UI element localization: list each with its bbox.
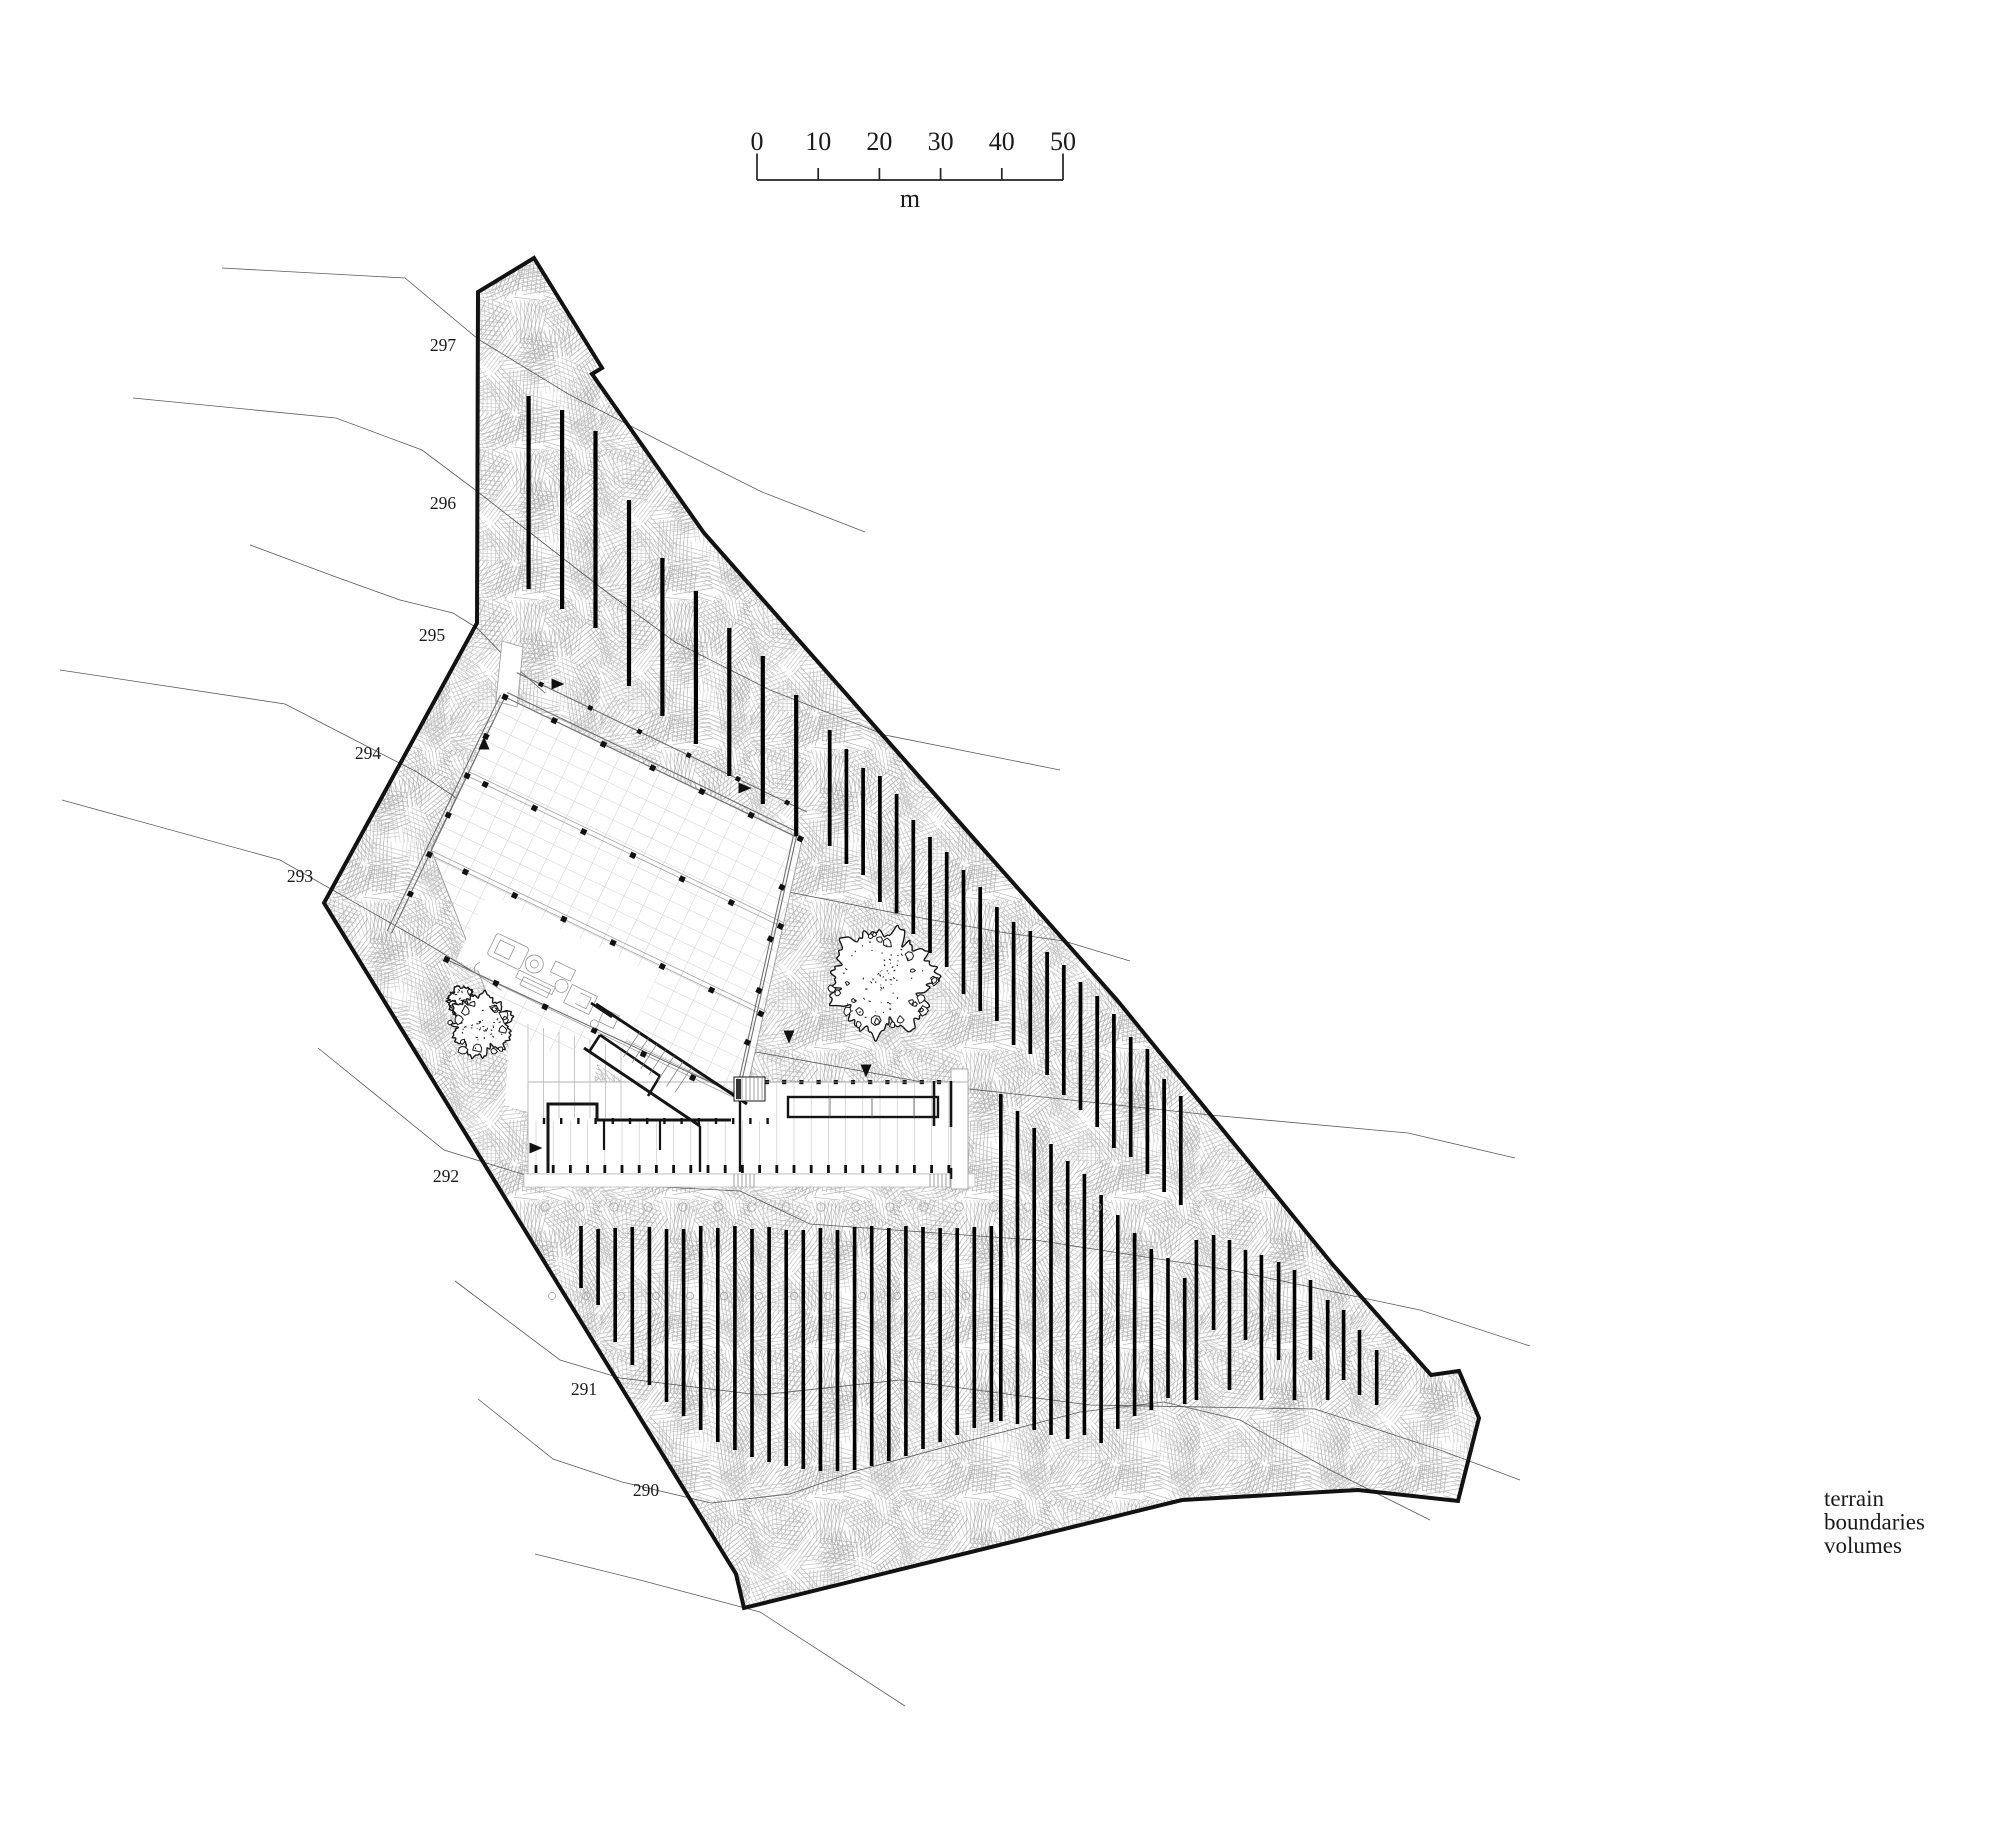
svg-text:291: 291 <box>571 1379 597 1399</box>
svg-text:296: 296 <box>430 493 457 513</box>
svg-text:20: 20 <box>866 127 892 156</box>
svg-text:290: 290 <box>633 1480 660 1500</box>
svg-text:30: 30 <box>928 127 954 156</box>
svg-text:50: 50 <box>1050 127 1076 156</box>
svg-text:volumes: volumes <box>1824 1533 1902 1558</box>
svg-text:292: 292 <box>433 1166 459 1186</box>
svg-text:terrain: terrain <box>1824 1486 1885 1511</box>
svg-text:0: 0 <box>751 127 764 156</box>
svg-text:boundaries: boundaries <box>1824 1510 1925 1535</box>
svg-text:40: 40 <box>989 127 1015 156</box>
svg-text:10: 10 <box>805 127 831 156</box>
svg-text:297: 297 <box>430 335 457 355</box>
svg-text:295: 295 <box>419 625 446 645</box>
svg-text:294: 294 <box>355 743 382 763</box>
svg-text:293: 293 <box>287 866 314 886</box>
svg-text:m: m <box>900 184 920 213</box>
